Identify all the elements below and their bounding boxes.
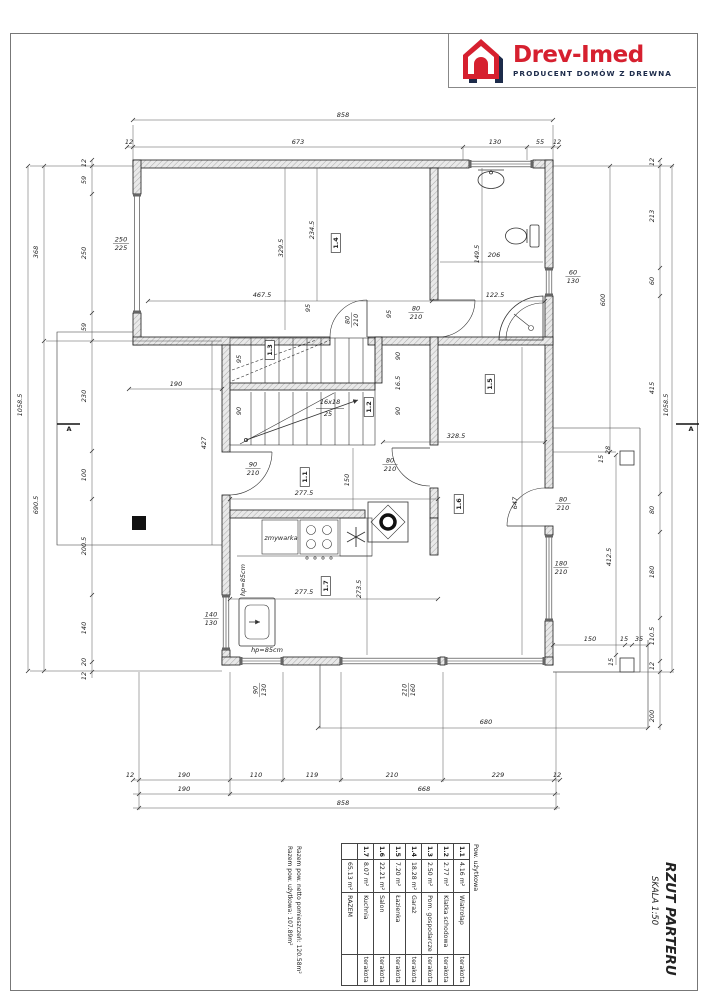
dim-label: 100 xyxy=(80,469,88,481)
svg-text:210: 210 xyxy=(386,771,398,779)
dim-label: 329.5 xyxy=(277,239,285,258)
svg-text:680: 680 xyxy=(480,718,492,726)
dim-label: 90 xyxy=(394,407,402,415)
svg-text:110: 110 xyxy=(250,771,262,779)
dim-label: 427 xyxy=(200,436,208,449)
dim-label: 110 xyxy=(250,771,262,779)
svg-text:668: 668 xyxy=(418,785,430,793)
drawing-title: RZUT PARTERU xyxy=(662,862,678,976)
drawing-sheet: Drev-Imed PRODUCENT DOMÓW Z DREWNA xyxy=(0,0,706,1000)
svg-text:600: 600 xyxy=(599,294,607,306)
svg-text:200.5: 200.5 xyxy=(80,537,88,556)
svg-text:28: 28 xyxy=(604,446,612,454)
svg-text:1.6: 1.6 xyxy=(455,498,463,510)
dim-label: 415 xyxy=(648,382,656,394)
svg-text:zmywarka: zmywarka xyxy=(263,534,297,542)
svg-text:210: 210 xyxy=(384,465,396,473)
dim-label: 277.5 xyxy=(295,489,314,497)
dim-label: 25 xyxy=(324,410,332,418)
svg-text:25: 25 xyxy=(324,410,332,418)
svg-text:122.5: 122.5 xyxy=(486,291,505,299)
dim-label: 80210 xyxy=(344,312,361,327)
svg-text:1.1: 1.1 xyxy=(301,471,309,483)
svg-text:1.2: 1.2 xyxy=(365,401,373,413)
svg-text:1.5: 1.5 xyxy=(486,378,494,390)
svg-text:210: 210 xyxy=(410,313,422,321)
dim-label: 12 xyxy=(125,138,133,146)
windows xyxy=(133,160,553,665)
svg-text:160: 160 xyxy=(409,684,417,696)
svg-text:90: 90 xyxy=(252,686,260,694)
svg-text:60: 60 xyxy=(569,269,577,277)
dim-label: 180210 xyxy=(553,560,568,577)
svg-text:415: 415 xyxy=(648,382,656,394)
dim-label: 55 xyxy=(536,138,544,146)
dim-label: 190 xyxy=(170,380,182,388)
window-left-kitchen xyxy=(222,595,230,650)
svg-text:1058.5: 1058.5 xyxy=(16,394,24,417)
area-table-row: 1.57.20 m²Łazienkaterakota xyxy=(390,844,406,986)
svg-text:119: 119 xyxy=(306,771,318,779)
svg-text:150: 150 xyxy=(584,635,596,643)
svg-text:95: 95 xyxy=(304,304,312,312)
svg-text:210: 210 xyxy=(401,684,409,696)
dim-label: 668 xyxy=(418,785,430,793)
door-corridor-salon xyxy=(392,448,430,486)
hob-icon xyxy=(300,520,338,559)
svg-text:12: 12 xyxy=(126,771,134,779)
svg-text:140: 140 xyxy=(205,611,217,619)
dim-label: 250225 xyxy=(113,236,129,253)
dim-label: 213 xyxy=(648,210,656,222)
sink-icon xyxy=(239,598,275,646)
room-number-label: 1.3 xyxy=(265,341,274,360)
svg-text:277.5: 277.5 xyxy=(295,588,314,596)
dim-label: A xyxy=(66,425,71,433)
svg-text:206: 206 xyxy=(488,251,500,259)
dim-label: 467.5 xyxy=(253,291,272,299)
svg-text:90: 90 xyxy=(235,407,243,415)
svg-text:149.5: 149.5 xyxy=(473,245,481,264)
svg-text:95: 95 xyxy=(385,310,393,318)
dim-label: 858 xyxy=(337,111,349,119)
dim-label: 647 xyxy=(511,496,519,509)
dim-label: 16.5 xyxy=(394,376,402,390)
svg-text:90: 90 xyxy=(249,461,257,469)
svg-text:210: 210 xyxy=(352,314,360,326)
svg-text:200: 200 xyxy=(648,710,656,722)
svg-text:673: 673 xyxy=(292,138,304,146)
window-bottom-3 xyxy=(445,657,545,665)
svg-text:12: 12 xyxy=(553,138,561,146)
dim-label: 35 xyxy=(635,635,643,643)
dim-label: 328.5 xyxy=(447,432,466,440)
svg-text:hp=85cm: hp=85cm xyxy=(239,564,247,596)
svg-text:60: 60 xyxy=(648,277,656,285)
dim-label: 80210 xyxy=(555,496,570,513)
stairs xyxy=(230,338,375,445)
svg-text:15: 15 xyxy=(597,455,605,463)
svg-text:35: 35 xyxy=(635,635,643,643)
dim-label: 15 xyxy=(607,658,615,666)
dim-label: 150 xyxy=(584,635,596,643)
dim-label: 130 xyxy=(489,138,501,146)
dim-label: 80 xyxy=(648,506,656,514)
svg-text:12: 12 xyxy=(648,662,656,670)
window-bottom-2 xyxy=(340,657,440,665)
dim-label: 673 xyxy=(292,138,304,146)
svg-text:59: 59 xyxy=(80,323,88,331)
svg-text:1.7: 1.7 xyxy=(322,580,330,592)
room-number-label: 1.2 xyxy=(364,398,373,417)
dim-label: 12 xyxy=(553,771,561,779)
dim-label: 1058.5 xyxy=(662,394,670,417)
svg-text:190: 190 xyxy=(178,771,190,779)
area-table-row: 1.22.77 m²Klatka schodowaterakota xyxy=(438,844,454,986)
window-right-large xyxy=(545,535,553,621)
svg-text:427: 427 xyxy=(200,436,208,449)
svg-text:328.5: 328.5 xyxy=(447,432,466,440)
dim-label: 206 xyxy=(488,251,500,259)
svg-text:A: A xyxy=(688,425,693,433)
dim-label: 273.5 xyxy=(355,580,363,599)
dim-label: 210160 xyxy=(401,683,418,697)
dim-label: 234.5 xyxy=(308,221,316,240)
svg-text:130: 130 xyxy=(567,277,579,285)
svg-text:467.5: 467.5 xyxy=(253,291,272,299)
plan-labels: 8581267313055121219011011921022912190668… xyxy=(16,111,694,807)
svg-text:80: 80 xyxy=(648,506,656,514)
dim-label: 20 xyxy=(80,658,88,666)
dim-label: 680 xyxy=(480,718,492,726)
area-summary: Razem pow. netto pomieszczeń: 120.58m² R… xyxy=(285,846,302,974)
svg-text:368: 368 xyxy=(32,246,40,258)
dim-label: hp=85cm xyxy=(239,564,247,596)
dim-label: 90 xyxy=(394,352,402,360)
svg-text:80: 80 xyxy=(344,316,352,324)
terrace-post xyxy=(620,658,634,672)
svg-text:210: 210 xyxy=(557,504,569,512)
dim-label: 80210 xyxy=(408,305,423,322)
walls xyxy=(133,160,553,665)
svg-text:90: 90 xyxy=(394,352,402,360)
svg-text:100: 100 xyxy=(80,469,88,481)
svg-text:55: 55 xyxy=(536,138,544,146)
room-number-label: 1.7 xyxy=(321,577,330,596)
dim-label: 28 xyxy=(604,446,612,454)
room-number-label: 1.5 xyxy=(485,375,494,394)
kitchen-fixtures xyxy=(237,502,408,646)
svg-text:1058.5: 1058.5 xyxy=(662,394,670,417)
dim-label: 600 xyxy=(599,294,607,306)
dim-label: 277.5 xyxy=(295,588,314,596)
dim-label: 90 xyxy=(235,407,243,415)
svg-text:130: 130 xyxy=(489,138,501,146)
svg-text:225: 225 xyxy=(115,244,127,252)
room-number-label: 1.6 xyxy=(454,495,463,514)
dim-label: 229 xyxy=(492,771,504,779)
svg-text:59: 59 xyxy=(80,176,88,184)
dim-label: 59 xyxy=(80,176,88,184)
dim-label: zmywarka xyxy=(263,534,297,542)
svg-text:15: 15 xyxy=(607,658,615,666)
dim-label: 150 xyxy=(343,474,351,486)
svg-text:250: 250 xyxy=(80,247,88,259)
dim-label: 60 xyxy=(648,277,656,285)
toilet-icon xyxy=(506,225,540,247)
area-table-row: 1.32.50 m²Pom. gospodarczeterakota xyxy=(422,844,438,986)
dim-label: 12 xyxy=(126,771,134,779)
svg-text:180: 180 xyxy=(648,566,656,578)
dim-label: A xyxy=(688,425,693,433)
dim-label: 190 xyxy=(178,771,190,779)
dim-label: 200 xyxy=(648,710,656,722)
window-right-small xyxy=(545,268,553,296)
dim-label: 690.5 xyxy=(32,496,40,515)
svg-text:858: 858 xyxy=(337,799,349,807)
svg-text:229: 229 xyxy=(492,771,504,779)
svg-text:12: 12 xyxy=(80,672,88,680)
door-bathroom xyxy=(438,300,475,337)
drawing-scale: SKALA 1:50 xyxy=(649,876,659,976)
svg-text:95: 95 xyxy=(235,355,243,363)
svg-text:16.5: 16.5 xyxy=(394,376,402,390)
dim-label: 12 xyxy=(80,159,88,167)
dimension-lines xyxy=(26,118,674,810)
svg-text:190: 190 xyxy=(170,380,182,388)
dim-label: 12 xyxy=(648,662,656,670)
svg-text:12: 12 xyxy=(553,771,561,779)
area-table-row: 1.622.21 m²Salonterakota xyxy=(374,844,390,986)
dim-label: 95 xyxy=(304,304,312,312)
svg-text:210: 210 xyxy=(247,469,259,477)
dim-label: hp=85cm xyxy=(251,646,283,654)
dim-label: 90210 xyxy=(245,461,260,478)
terrace-lines xyxy=(57,332,648,728)
svg-text:A: A xyxy=(66,425,71,433)
dim-label: 230 xyxy=(80,390,88,402)
svg-text:80: 80 xyxy=(559,496,567,504)
window-bottom-1 xyxy=(240,657,283,665)
area-table-row: 65.13 m²RAZEM xyxy=(342,844,358,986)
dim-label: 149.5 xyxy=(473,245,481,264)
svg-text:12: 12 xyxy=(125,138,133,146)
svg-text:273.5: 273.5 xyxy=(355,580,363,599)
dim-label: 12 xyxy=(80,672,88,680)
dim-label: 858 xyxy=(337,799,349,807)
svg-text:329.5: 329.5 xyxy=(277,239,285,258)
svg-text:250: 250 xyxy=(115,236,127,244)
svg-text:12: 12 xyxy=(648,158,656,166)
svg-text:210: 210 xyxy=(555,568,567,576)
svg-text:130: 130 xyxy=(260,684,268,696)
svg-text:90: 90 xyxy=(394,407,402,415)
dim-label: 190 xyxy=(178,785,190,793)
svg-text:20: 20 xyxy=(80,658,88,666)
dim-label: 12 xyxy=(648,158,656,166)
dim-label: 368 xyxy=(32,246,40,258)
svg-text:12: 12 xyxy=(80,159,88,167)
dim-label: 122.5 xyxy=(486,291,505,299)
dim-label: 60130 xyxy=(565,269,580,286)
room-number-label: 1.4 xyxy=(331,234,340,253)
svg-text:1.4: 1.4 xyxy=(332,237,340,249)
svg-text:140: 140 xyxy=(80,622,88,634)
svg-text:180: 180 xyxy=(555,560,567,568)
summary-line-net: Razem pow. netto pomieszczeń: 120.58m² xyxy=(293,846,302,974)
svg-text:230: 230 xyxy=(80,390,88,402)
dim-label: 80210 xyxy=(382,457,397,474)
area-table-row: 1.418.28 m²Garażterakota xyxy=(406,844,422,986)
svg-text:16x18: 16x18 xyxy=(320,398,340,406)
svg-text:190: 190 xyxy=(178,785,190,793)
garage-door-opening xyxy=(133,194,141,313)
terrace-post xyxy=(620,451,634,465)
dim-label: 110.5 xyxy=(648,627,656,646)
porch-post xyxy=(132,516,146,530)
dim-label: 210 xyxy=(386,771,398,779)
svg-text:412.5: 412.5 xyxy=(605,548,613,567)
dim-label: 16x18 xyxy=(320,398,340,406)
dim-label: 119 xyxy=(306,771,318,779)
area-table-row: 1.14.16 m²Wiatrołapterakota xyxy=(454,844,470,986)
dim-label: 1058.5 xyxy=(16,394,24,417)
area-table: 1.14.16 m²Wiatrołapterakota1.22.77 m²Kla… xyxy=(341,843,470,986)
dim-label: 200.5 xyxy=(80,537,88,556)
svg-text:130: 130 xyxy=(205,619,217,627)
svg-text:277.5: 277.5 xyxy=(295,489,314,497)
svg-text:234.5: 234.5 xyxy=(308,221,316,240)
area-table-row: 1.78.07 m²Kuchniaterakota xyxy=(358,844,374,986)
dim-label: 140130 xyxy=(203,611,218,628)
dim-label: 15 xyxy=(597,455,605,463)
window-top-bath xyxy=(469,160,533,168)
dim-label: 59 xyxy=(80,323,88,331)
summary-line-usable: Razem pow. użytkowa: 107.89m² xyxy=(285,846,294,974)
dim-label: 412.5 xyxy=(605,548,613,567)
dim-label: 12 xyxy=(553,138,561,146)
svg-text:80: 80 xyxy=(412,305,420,313)
dim-label: 140 xyxy=(80,622,88,634)
svg-text:80: 80 xyxy=(386,457,394,465)
svg-text:213: 213 xyxy=(648,210,656,222)
doors xyxy=(230,300,545,526)
svg-text:1.3: 1.3 xyxy=(266,344,274,356)
title-block: RZUT PARTERU SKALA 1:50 xyxy=(649,862,678,976)
svg-text:690.5: 690.5 xyxy=(32,496,40,515)
svg-text:15: 15 xyxy=(620,635,628,643)
dim-label: 15 xyxy=(620,635,628,643)
dim-label: 90130 xyxy=(252,683,269,697)
svg-text:647: 647 xyxy=(511,496,519,509)
shower-icon xyxy=(499,296,543,340)
dim-label: 180 xyxy=(648,566,656,578)
svg-text:858: 858 xyxy=(337,111,349,119)
svg-text:hp=85cm: hp=85cm xyxy=(251,646,283,654)
area-table-caption: Pow. użytkowa xyxy=(472,844,480,963)
room-number-label: 1.1 xyxy=(300,468,309,487)
dim-label: 95 xyxy=(235,355,243,363)
fireplace-icon xyxy=(368,502,408,542)
dim-label: 250 xyxy=(80,247,88,259)
area-table-block: Pow. użytkowa 1.14.16 m²Wiatrołapterakot… xyxy=(341,843,480,963)
dim-label: 95 xyxy=(385,310,393,318)
svg-text:110.5: 110.5 xyxy=(648,627,656,646)
svg-text:150: 150 xyxy=(343,474,351,486)
